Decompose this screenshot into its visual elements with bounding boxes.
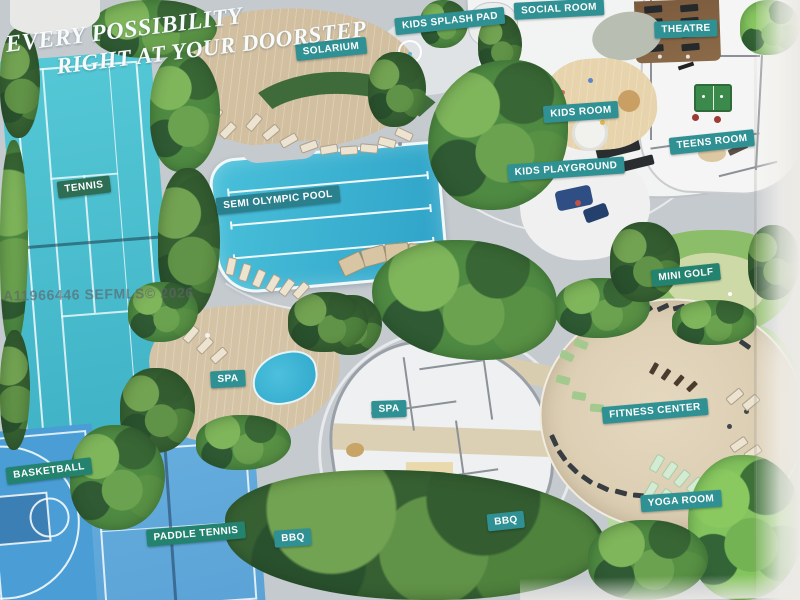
theatre-light [658, 55, 662, 59]
lounge-chair [360, 143, 379, 154]
teens-chair [714, 116, 721, 123]
person [398, 142, 402, 146]
interior-wall [483, 359, 494, 420]
mls-watermark: A11966446 SEFMLS© 2026 [3, 284, 194, 303]
kids-room-rug [618, 90, 640, 112]
page-edge-right [756, 0, 800, 600]
theatre-light [686, 55, 690, 59]
gym-equipment [727, 424, 732, 429]
teens-chair [692, 114, 699, 121]
lounge-chair [340, 145, 359, 155]
toy [588, 78, 593, 83]
label-spa-outdoor: SPA [210, 370, 246, 389]
play-structure [575, 200, 581, 206]
theatre-seat-row [644, 5, 663, 14]
label-theatre: THEATRE [654, 19, 718, 38]
foosball-table [694, 84, 732, 112]
spa-rug [345, 442, 365, 458]
theatre-seat-row [681, 43, 700, 52]
side-table [205, 333, 210, 338]
page-edge-bottom [520, 574, 800, 600]
theatre-seat-row [680, 4, 699, 13]
label-bbq-west: BBQ [274, 528, 313, 548]
tree-cluster [196, 415, 291, 470]
interior-wall [419, 359, 483, 370]
golf-hole [728, 292, 732, 296]
toy [600, 120, 605, 125]
label-spa-building: SPA [371, 400, 407, 418]
amenity-site-map: KIDS SPLASH PAD SOCIAL ROOM THEATRE SOLA… [0, 0, 800, 600]
interior-wall [402, 357, 414, 430]
